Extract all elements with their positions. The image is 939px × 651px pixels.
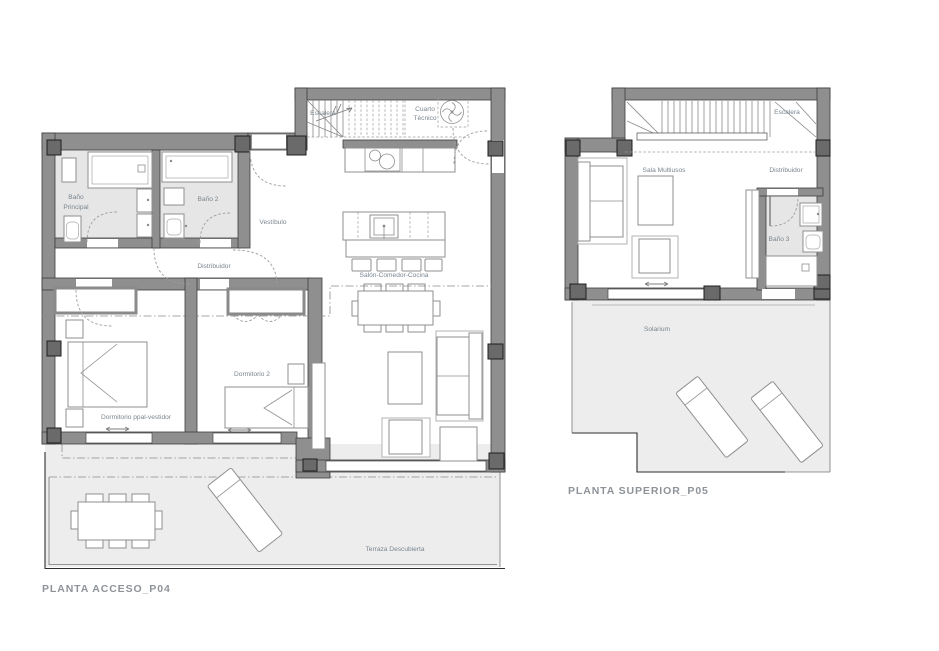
extractor-fan-icon — [438, 99, 468, 127]
armchair — [632, 236, 678, 278]
plan-superior-title: PLANTA SUPERIOR_P05 — [568, 485, 709, 497]
sala-furniture — [578, 158, 759, 286]
kitchen-counter — [345, 148, 455, 172]
plan-access-title: PLANTA ACCESO_P04 — [42, 583, 171, 595]
plan-access: Terraza Descubierta — [42, 88, 505, 595]
bedroom-2 — [225, 289, 308, 432]
armchair — [382, 418, 430, 457]
label-distribuidor: Distribuidor — [197, 263, 231, 270]
living-area — [312, 331, 483, 461]
label-solarium: Solarium — [644, 326, 671, 333]
label-terraza: Terraza Descubierta — [365, 546, 424, 553]
table — [638, 176, 673, 225]
sofa — [436, 331, 483, 421]
tall-cabinet — [746, 190, 759, 278]
label-distribuidor: Distribuidor — [769, 167, 803, 174]
label-bano3: Baño 3 — [769, 236, 790, 243]
label-escalera: Escalera — [774, 109, 800, 116]
side-table — [440, 427, 477, 461]
label-vestibulo: Vestíbulo — [259, 219, 286, 226]
label-sala-multiusos: Sala Multiusos — [643, 167, 687, 174]
label-cuarto-tecnico: Cuarto — [415, 106, 435, 113]
label-escalera: Escalera — [310, 110, 336, 117]
outdoor-dining-table — [71, 494, 162, 548]
label-bano-principal: Baño — [68, 194, 84, 201]
label-bano2: Baño 2 — [198, 196, 219, 203]
staircase — [307, 99, 470, 137]
label-bano-principal-2: Principal — [63, 204, 89, 211]
label-dormitorio-2: Dormitorio 2 — [234, 371, 270, 378]
wall-cabinet — [312, 363, 325, 449]
bedroom-principal — [55, 288, 147, 431]
floorplan-sheet: Terraza Descubierta — [0, 0, 939, 651]
sofa — [578, 158, 627, 244]
dining-set — [352, 284, 440, 332]
floorplan-drawing: Terraza Descubierta — [0, 0, 939, 651]
solarium: Solarium — [572, 300, 830, 472]
plan-superior: Solarium — [565, 88, 830, 497]
kitchen-island — [343, 212, 445, 271]
label-cuarto-tecnico-2: Técnico — [413, 115, 436, 122]
label-dormitorio-ppal: Dormitorio ppal-vestidor — [101, 414, 172, 421]
label-salon: Salón-Comedor-Cocina — [360, 272, 429, 279]
